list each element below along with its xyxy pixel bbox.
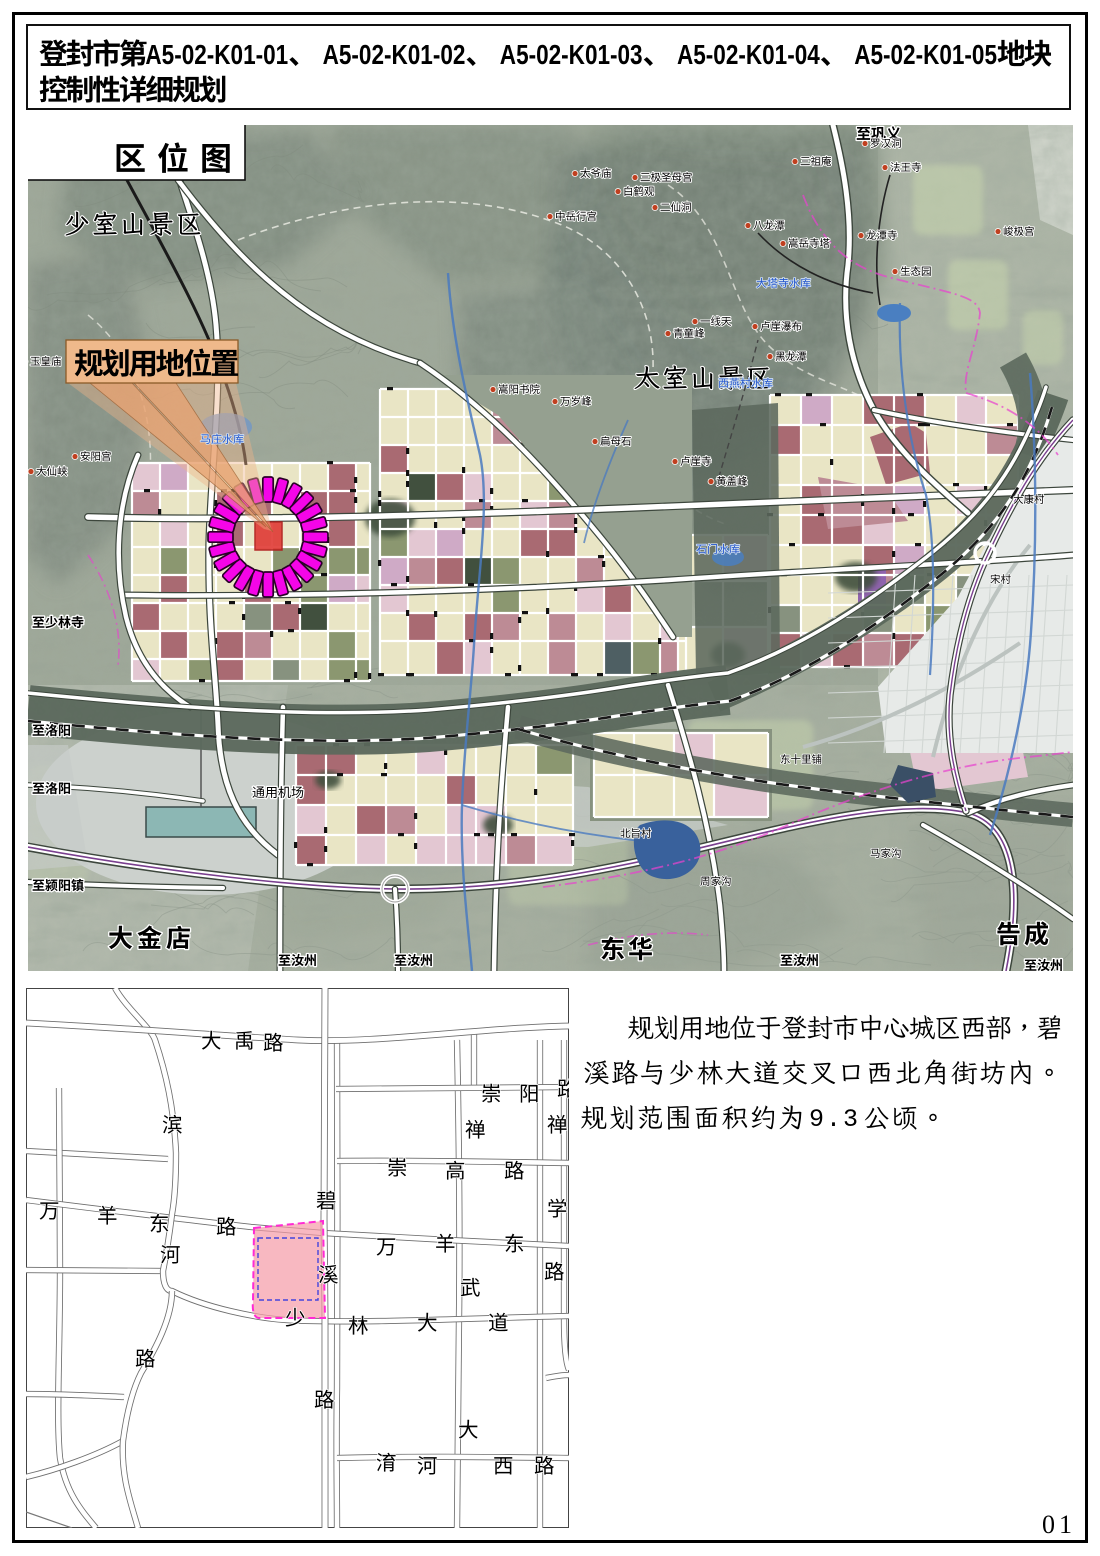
svg-text:A5-02-K01-02: A5-02-K01-02	[323, 39, 466, 70]
svg-text:A5-02-K01-04: A5-02-K01-04	[677, 39, 820, 70]
svg-text:A5-02-K01-01: A5-02-K01-01	[145, 39, 288, 70]
svg-text:A5-02-K01-05: A5-02-K01-05	[854, 39, 997, 70]
svg-text:9.3: 9.3	[809, 1105, 860, 1134]
svg-text:A5-02-K01-03: A5-02-K01-03	[500, 39, 643, 70]
